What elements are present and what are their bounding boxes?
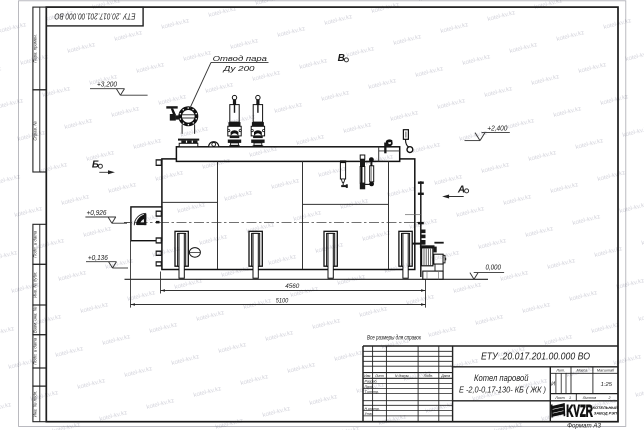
svg-text:В: В [338,53,345,64]
svg-text:Ду 200: Ду 200 [222,64,255,73]
svg-text:+0,926: +0,926 [87,208,108,217]
svg-text:А: А [457,184,465,195]
svg-text:4560: 4560 [285,283,299,290]
svg-text:И: И [551,382,555,388]
svg-text:Котел паровой: Котел паровой [474,373,529,383]
svg-text:Утв.: Утв. [365,412,373,416]
svg-text:Отвод пара: Отвод пара [213,54,267,63]
svg-text:Н.контр.: Н.контр. [365,407,380,411]
svg-text:Лит.: Лит. [555,369,565,373]
svg-text:1:25: 1:25 [601,382,613,388]
svg-text:Дата: Дата [440,374,450,378]
svg-text:Листов: Листов [582,396,597,400]
svg-text:Масштаб: Масштаб [597,369,615,373]
svg-text:Изм.: Изм. [364,374,371,378]
svg-text:0,000: 0,000 [485,262,501,271]
svg-text:Формат А3: Формат А3 [567,423,601,430]
svg-text:Лист: Лист [374,374,384,378]
svg-text:Лист: Лист [554,396,565,400]
svg-text:ЗАВОД РЭП: ЗАВОД РЭП [594,410,617,415]
svg-text:+0,136: +0,136 [88,253,109,262]
svg-text:1: 1 [569,396,571,400]
svg-text:5100: 5100 [276,297,289,304]
